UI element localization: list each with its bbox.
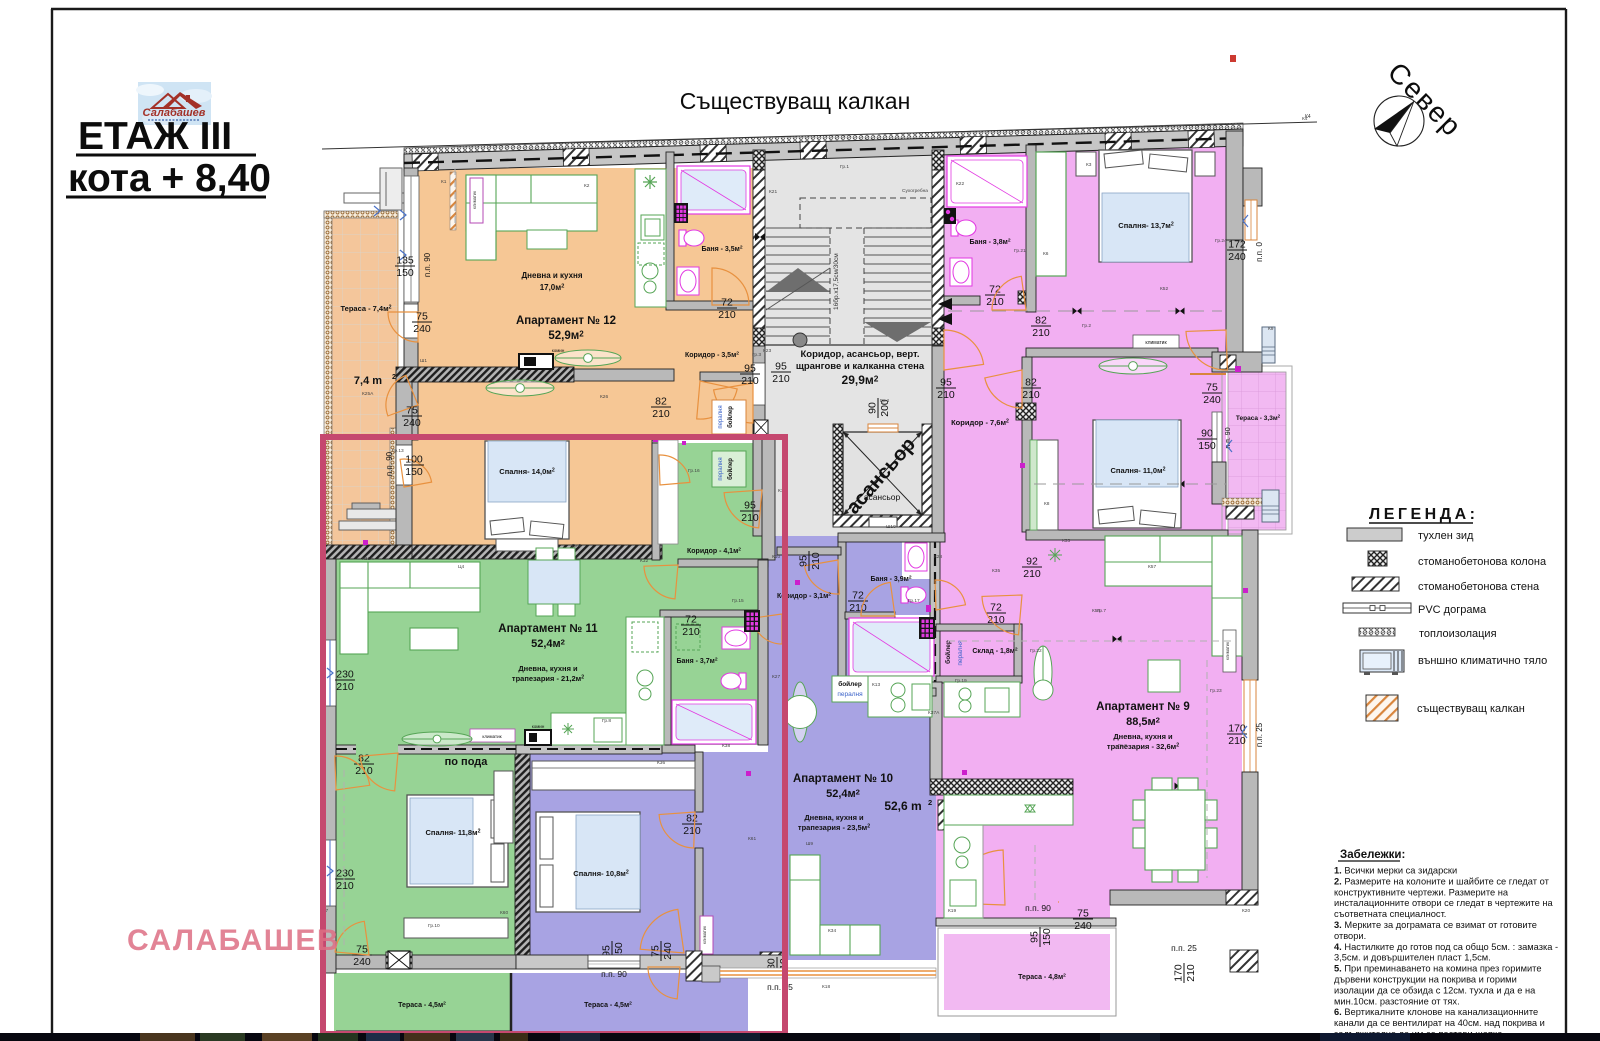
svg-text:230: 230 (336, 669, 354, 681)
svg-text:Коридор - 7,6м2: Коридор - 7,6м2 (951, 418, 1009, 427)
svg-text:150: 150 (1041, 928, 1053, 946)
svg-text:72: 72 (990, 602, 1002, 614)
svg-text:150: 150 (396, 267, 414, 279)
svg-text:95: 95 (744, 500, 756, 512)
svg-text:К2: К2 (584, 183, 590, 189)
svg-text:К1: К1 (441, 179, 447, 185)
svg-text:К33: К33 (1062, 538, 1070, 544)
svg-text:п.п. 90: п.п. 90 (1225, 427, 1232, 448)
svg-text:Тераса - 4,5м2: Тераса - 4,5м2 (398, 1001, 446, 1010)
svg-text:Баня - 3,5м2: Баня - 3,5м2 (701, 245, 742, 254)
svg-text:К34: К34 (828, 928, 836, 934)
svg-text:Гр.4: Гр.4 (880, 398, 889, 404)
svg-text:стоманобетонова стена: стоманобетонова стена (1418, 581, 1540, 593)
svg-text:75: 75 (1077, 908, 1089, 920)
svg-text:92: 92 (1026, 556, 1038, 568)
svg-text:Тераса - 4,5м2: Тераса - 4,5м2 (584, 1001, 632, 1010)
svg-text:2. Размерите на колоните и шай: 2. Размерите на колоните и шайбите се гл… (1334, 876, 1550, 886)
svg-text:5. При преминаването на комина: 5. При преминаването на комина през гори… (1334, 964, 1542, 974)
svg-text:210: 210 (652, 408, 670, 420)
svg-text:дървени конструкции на покрива: дървени конструкции на покрива и горими (1334, 975, 1517, 985)
svg-text:1. Всички мерки са зидарски: 1. Всички мерки са зидарски (1334, 866, 1457, 876)
svg-text:Гр.24: Гр.24 (1215, 238, 1227, 244)
svg-text:Дневна и кухня: Дневна и кухня (521, 271, 582, 280)
svg-text:240: 240 (413, 323, 431, 335)
svg-text:К23: К23 (763, 348, 771, 354)
svg-text:3,5см. и довършителен пласт 1,: 3,5см. и довършителен пласт 1,5см. (1334, 953, 1491, 963)
svg-text:240: 240 (1074, 920, 1092, 932)
svg-text:240: 240 (403, 417, 421, 429)
svg-text:щрангове и калканна стена: щрангове и калканна стена (796, 361, 925, 372)
svg-text:240: 240 (353, 956, 371, 968)
svg-text:7,4 m: 7,4 m (354, 375, 382, 387)
svg-text:мин.10см. разстояние от тях.: мин.10см. разстояние от тях. (1334, 996, 1460, 1006)
svg-text:Баня - 3,8м2: Баня - 3,8м2 (969, 238, 1010, 247)
svg-text:Ш10: Ш10 (886, 524, 896, 530)
svg-text:Коридор - 4,1м2: Коридор - 4,1м2 (687, 547, 741, 556)
svg-text:210: 210 (937, 389, 955, 401)
svg-text:К22: К22 (956, 181, 964, 187)
svg-text:210: 210 (772, 373, 790, 385)
svg-text:4. Настилките до готов под са: 4. Настилките до готов под са общо 5см. … (1334, 942, 1558, 952)
svg-text:К38: К38 (722, 743, 730, 749)
svg-text:комин: комин (532, 724, 545, 729)
svg-text:бойлер: бойлер (838, 680, 862, 688)
svg-text:210: 210 (682, 626, 700, 638)
svg-text:95: 95 (1029, 931, 1041, 943)
svg-text:150: 150 (1198, 440, 1216, 452)
svg-text:Гр.17: Гр.17 (908, 598, 920, 604)
svg-text:230: 230 (336, 868, 354, 880)
svg-text:210: 210 (741, 512, 759, 524)
svg-text:пералня: пералня (718, 457, 724, 480)
svg-text:95: 95 (775, 361, 787, 373)
svg-text:външно климатично тяло: външно климатично тяло (1418, 655, 1547, 667)
svg-text:82: 82 (1025, 377, 1037, 389)
svg-text:150: 150 (405, 466, 423, 478)
svg-text:конструктивните чертежи. Разме: конструктивните чертежи. Размерите на (1334, 887, 1509, 897)
svg-text:82: 82 (686, 813, 698, 825)
svg-text:170: 170 (1173, 964, 1185, 982)
svg-text:Склад - 1,8м2: Склад - 1,8м2 (972, 647, 1018, 656)
svg-text:К9: К9 (1268, 326, 1274, 332)
svg-text:72: 72 (852, 590, 864, 602)
svg-text:изолации да се обзида с 12см.: изолации да се обзида с 12см. тухла и да… (1334, 985, 1536, 995)
svg-text:240: 240 (1203, 394, 1221, 406)
svg-text:Сухогребна: Сухогребна (902, 188, 928, 194)
svg-text:90: 90 (1201, 428, 1213, 440)
svg-text:К35: К35 (992, 568, 1000, 574)
svg-text:Гр.2: Гр.2 (1082, 323, 1091, 329)
svg-text:90: 90 (867, 402, 879, 414)
svg-text:95: 95 (940, 377, 952, 389)
svg-text:бойлер: бойлер (727, 406, 734, 428)
svg-text:К10: К10 (772, 554, 780, 560)
svg-text:52,6 m: 52,6 m (884, 799, 921, 813)
svg-text:К27: К27 (772, 674, 780, 680)
svg-text:82: 82 (655, 396, 667, 408)
svg-text:Апартамент № 11: Апартамент № 11 (498, 623, 598, 635)
svg-text:210: 210 (1185, 964, 1197, 982)
svg-text:п.п. 90: п.п. 90 (1025, 903, 1051, 913)
svg-text:72: 72 (685, 614, 697, 626)
svg-text:ЛЕГЕНДА:: ЛЕГЕНДА: (1369, 506, 1478, 523)
svg-text:К18: К18 (822, 984, 830, 990)
svg-text:К28: К28 (934, 554, 942, 560)
svg-text:асансьор: асансьор (864, 492, 901, 502)
svg-text:17,0м2: 17,0м2 (540, 283, 565, 292)
svg-text:пералня: пералня (718, 405, 724, 428)
svg-text:Гр.8: Гр.8 (602, 718, 611, 724)
svg-text:К32: К32 (640, 558, 648, 564)
svg-text:К4: К4 (1305, 114, 1311, 120)
svg-text:Дневна, кухня и: Дневна, кухня и (1113, 732, 1173, 741)
svg-text:210: 210 (1032, 327, 1050, 339)
svg-text:пералня: пералня (957, 640, 964, 666)
svg-text:К19: К19 (948, 908, 956, 914)
svg-text:210: 210 (1228, 735, 1246, 747)
svg-text:климатик: климатик (472, 191, 477, 209)
svg-text:Дневна, кухня и: Дневна, кухня и (518, 664, 578, 673)
svg-text:172: 172 (1228, 239, 1246, 251)
svg-text:К60: К60 (500, 910, 508, 916)
svg-text:канали да се вентилират на 40с: канали да се вентилират на 40см. над пок… (1334, 1018, 1545, 1028)
svg-text:Гр.16: Гр.16 (688, 468, 700, 474)
svg-text:Ш9: Ш9 (806, 841, 813, 847)
svg-text:Гр.6: Гр.6 (572, 543, 581, 549)
svg-text:29,9м2: 29,9м2 (842, 373, 879, 387)
svg-text:Забележки:: Забележки: (1340, 849, 1405, 861)
svg-text:135: 135 (396, 255, 414, 267)
svg-text:88,5м2: 88,5м2 (1126, 716, 1160, 729)
svg-text:PVC дограма: PVC дограма (1418, 604, 1487, 616)
svg-text:3. Мерките за дограмата се взи: 3. Мерките за дограмата се взимат от гот… (1334, 920, 1537, 930)
svg-text:Ц4: Ц4 (458, 564, 465, 570)
svg-text:стоманобетонова колона: стоманобетонова колона (1418, 556, 1547, 568)
svg-text:Съществуващ калкан: Съществуващ калкан (680, 88, 911, 114)
svg-text:Спалня- 10,8м2: Спалня- 10,8м2 (573, 869, 629, 878)
svg-text:2: 2 (928, 798, 932, 807)
svg-text:Коридор - 3,5м2: Коридор - 3,5м2 (685, 351, 739, 360)
svg-text:К16: К16 (942, 784, 950, 790)
svg-text:Спалня- 11,8м2: Спалня- 11,8м2 (426, 828, 481, 837)
svg-text:52,4м2: 52,4м2 (531, 638, 565, 651)
svg-text:климатик: климатик (702, 926, 707, 944)
svg-text:К37А: К37А (928, 710, 940, 716)
svg-text:Баня - 3,7м2: Баня - 3,7м2 (676, 657, 717, 666)
svg-text:210: 210 (1023, 568, 1041, 580)
svg-text:240: 240 (662, 942, 674, 960)
svg-text:трапезария - 21,2м2: трапезария - 21,2м2 (512, 674, 584, 683)
svg-text:п.п. 25: п.п. 25 (767, 982, 793, 992)
svg-text:Гр.21: Гр.21 (1014, 248, 1026, 254)
svg-text:п.п. 90: п.п. 90 (601, 969, 627, 979)
svg-text:климатик: климатик (1145, 340, 1167, 346)
svg-text:К31А: К31А (362, 556, 374, 562)
svg-text:Тераса - 7,4м2: Тераса - 7,4м2 (340, 304, 391, 313)
svg-text:п.п. 25: п.п. 25 (1171, 943, 1197, 953)
svg-text:210: 210 (718, 309, 736, 321)
svg-text:210: 210 (849, 602, 867, 614)
svg-text:210: 210 (986, 296, 1004, 308)
svg-text:топлоизолация: топлоизолация (1419, 628, 1497, 640)
svg-text:п.п. 0: п.п. 0 (1255, 242, 1264, 262)
svg-text:Гр.19: Гр.19 (955, 678, 967, 684)
svg-text:52,4м2: 52,4м2 (826, 788, 860, 801)
svg-text:п.п. 25: п.п. 25 (1255, 722, 1264, 747)
svg-text:210: 210 (1022, 389, 1040, 401)
svg-text:климатик: климатик (1225, 642, 1230, 660)
svg-text:К25А: К25А (362, 391, 374, 397)
svg-text:Гр.1: Гр.1 (840, 164, 849, 170)
svg-text:климатик: климатик (482, 734, 501, 739)
svg-text:Гр.23: Гр.23 (1210, 688, 1222, 694)
svg-text:82: 82 (1035, 315, 1047, 327)
svg-text:Ш1: Ш1 (420, 358, 427, 364)
svg-text:Гр.10: Гр.10 (428, 923, 440, 929)
svg-text:К26: К26 (600, 394, 608, 400)
svg-text:пералня: пералня (837, 691, 863, 698)
svg-text:К61: К61 (748, 836, 756, 842)
svg-text:тухлен зид: тухлен зид (1418, 530, 1474, 542)
svg-text:Гр.22: Гр.22 (1030, 648, 1042, 654)
svg-text:отвори.: отвори. (1334, 931, 1366, 941)
svg-text:кота + 8,40: кота + 8,40 (68, 157, 271, 200)
svg-text:Гр.7: Гр.7 (1097, 608, 1106, 614)
svg-text:6. Вертикалните клонове на кан: 6. Вертикалните клонове на канализационн… (1334, 1007, 1538, 1017)
svg-text:75: 75 (416, 311, 428, 323)
svg-text:К20: К20 (1242, 908, 1250, 914)
svg-text:Апартамент № 12: Апартамент № 12 (516, 315, 616, 327)
svg-text:бойлер: бойлер (944, 640, 952, 664)
svg-text:100: 100 (405, 454, 423, 466)
svg-text:ЕТАЖ III: ЕТАЖ III (78, 115, 232, 158)
svg-text:бойлер: бойлер (727, 458, 734, 480)
svg-text:Спалня- 11,0м2: Спалня- 11,0м2 (1111, 466, 1166, 475)
svg-text:К52: К52 (1160, 286, 1168, 292)
svg-text:75: 75 (406, 405, 418, 417)
svg-text:Спалня- 13,7м2: Спалня- 13,7м2 (1118, 221, 1174, 230)
svg-text:2: 2 (392, 374, 396, 381)
svg-text:К6: К6 (1043, 251, 1049, 257)
svg-text:Апартамент № 9: Апартамент № 9 (1096, 701, 1190, 713)
svg-text:210: 210 (336, 880, 354, 892)
svg-text:75: 75 (650, 945, 662, 957)
svg-text:САЛАБАШЕВ: САЛАБАШЕВ (127, 924, 340, 957)
svg-text:75: 75 (1206, 382, 1218, 394)
svg-text:Тераса - 3,3м2: Тераса - 3,3м2 (1236, 414, 1281, 423)
svg-text:Баня - 3,9м2: Баня - 3,9м2 (870, 575, 911, 584)
svg-text:съществуващ калкан: съществуващ калкан (1417, 703, 1525, 715)
svg-text:Коридор, асансьор, верт.: Коридор, асансьор, верт. (800, 349, 919, 360)
svg-text:К36: К36 (657, 760, 665, 766)
svg-text:16бр.х17,5см/30см: 16бр.х17,5см/30см (832, 253, 840, 310)
svg-text:Гр.9: Гр.9 (1118, 743, 1127, 749)
svg-text:52,9м2: 52,9м2 (548, 330, 584, 343)
svg-text:210: 210 (683, 825, 701, 837)
svg-text:трапезария - 23,5м2: трапезария - 23,5м2 (798, 823, 870, 832)
svg-text:72: 72 (721, 297, 733, 309)
svg-text:п.п. 90: п.п. 90 (423, 252, 432, 277)
svg-text:по пода: по пода (445, 756, 489, 768)
svg-text:210: 210 (741, 375, 759, 387)
svg-text:Тераса - 4,8м2: Тераса - 4,8м2 (1018, 973, 1066, 982)
svg-text:инсталационните отвори се глед: инсталационните отвори се гледат в черте… (1334, 898, 1554, 908)
svg-text:Гр.15: Гр.15 (732, 598, 744, 604)
svg-text:95: 95 (744, 363, 756, 375)
svg-text:п.п. 90: п.п. 90 (385, 451, 394, 476)
svg-text:К3: К3 (1086, 162, 1092, 168)
svg-text:К57: К57 (1148, 564, 1156, 570)
svg-text:240: 240 (1228, 251, 1246, 263)
svg-text:Дневна, кухня и: Дневна, кухня и (804, 813, 864, 822)
svg-text:К8: К8 (1044, 501, 1050, 507)
svg-text:К13: К13 (872, 682, 880, 688)
svg-text:95: 95 (798, 555, 810, 567)
svg-text:Апартамент № 10: Апартамент № 10 (793, 773, 893, 785)
svg-text:Гр.13: Гр.13 (392, 448, 404, 454)
svg-text:210: 210 (336, 681, 354, 693)
svg-text:Спалня- 14,0м2: Спалня- 14,0м2 (499, 467, 555, 476)
svg-text:съответната специалност.: съответната специалност. (1334, 909, 1446, 919)
svg-text:комин: комин (552, 348, 565, 353)
svg-text:К21: К21 (769, 189, 777, 195)
svg-text:Гр.3: Гр.3 (752, 352, 761, 358)
svg-text:210: 210 (810, 552, 822, 570)
